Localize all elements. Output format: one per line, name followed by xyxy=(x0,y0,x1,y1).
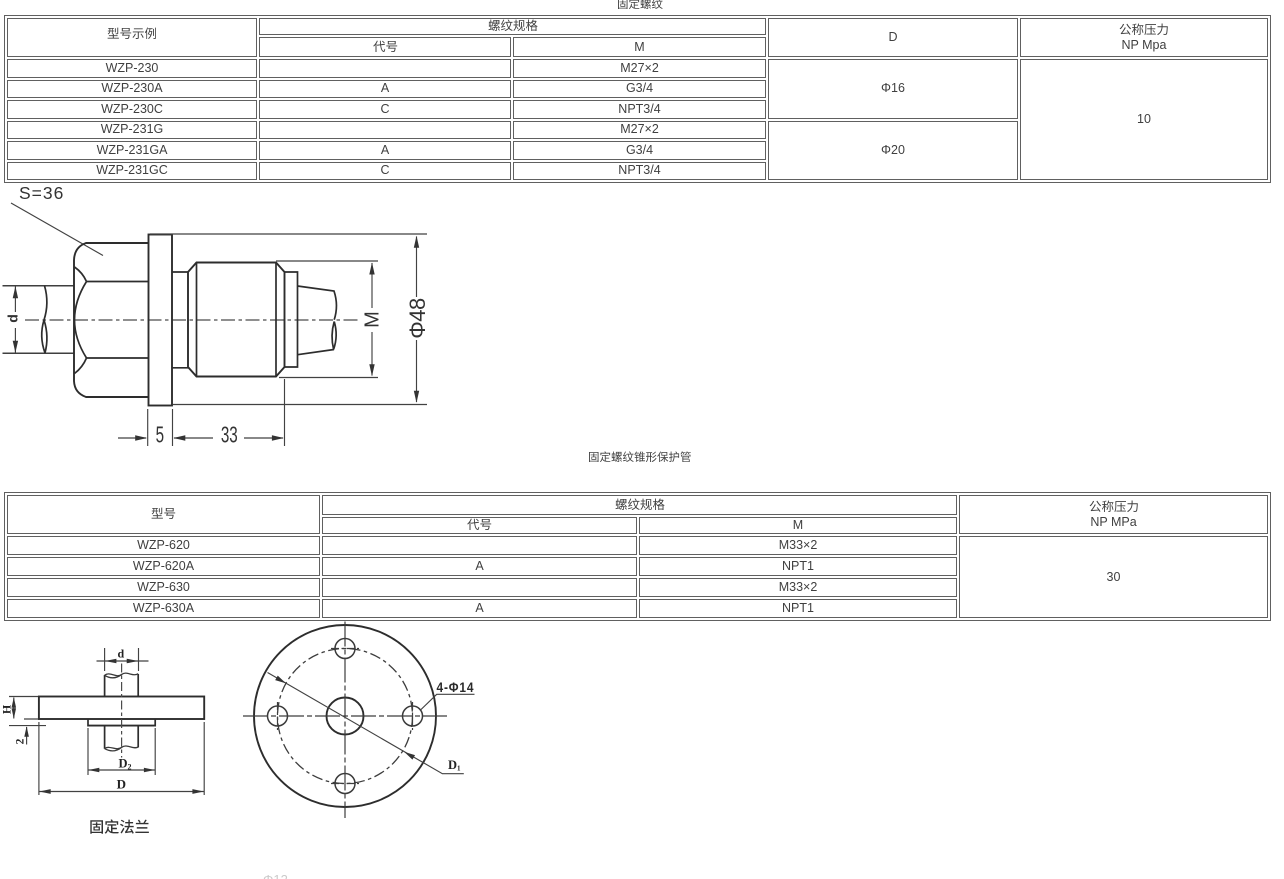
svg-text:4-Φ14: 4-Φ14 xyxy=(437,679,475,695)
svg-text:d: d xyxy=(5,314,21,323)
svg-text:H: H xyxy=(0,704,14,714)
svg-text:5: 5 xyxy=(156,422,165,448)
svg-text:S=36: S=36 xyxy=(19,183,64,203)
svg-text:D: D xyxy=(117,777,126,792)
svg-text:D1: D1 xyxy=(448,758,461,773)
svg-text:D2: D2 xyxy=(119,757,132,772)
svg-text:Φ12: Φ12 xyxy=(263,872,288,879)
svg-text:d: d xyxy=(117,647,124,661)
svg-text:33: 33 xyxy=(221,422,238,448)
svg-text:Φ48: Φ48 xyxy=(405,298,430,339)
svg-text:2: 2 xyxy=(15,738,27,744)
svg-text:M: M xyxy=(362,311,384,328)
